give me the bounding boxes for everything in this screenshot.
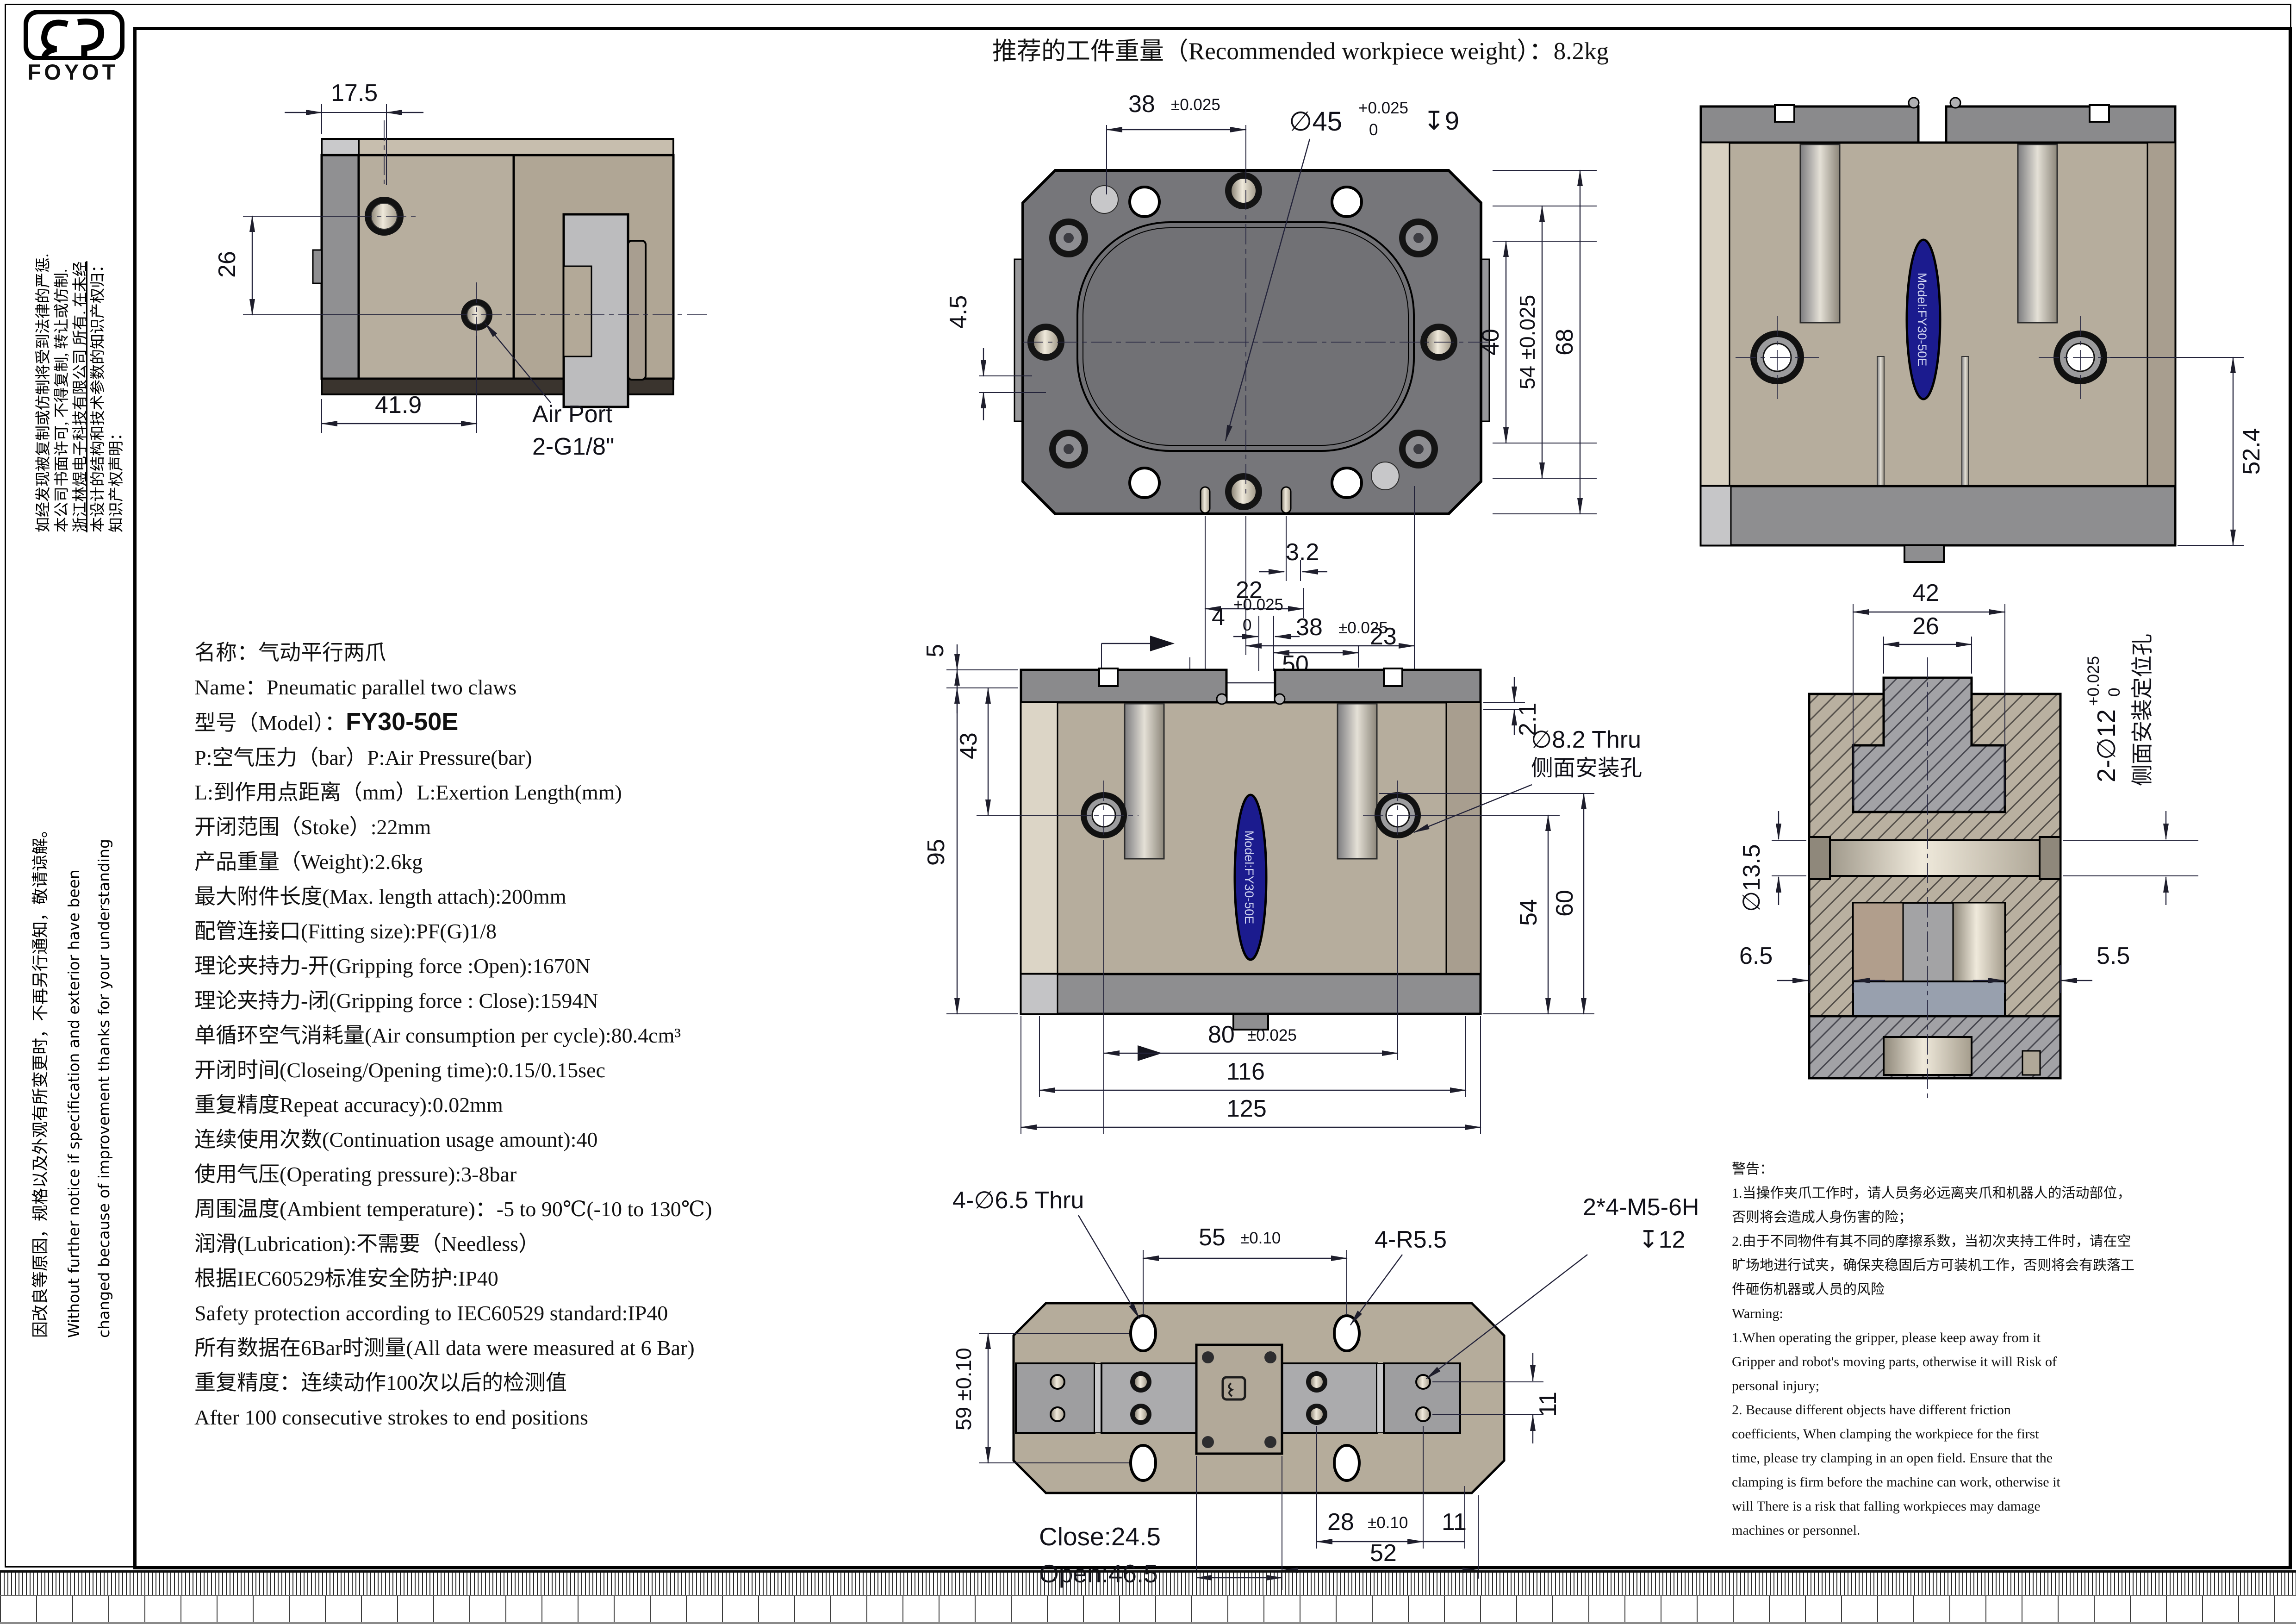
svg-text:↧9: ↧9 [1423, 106, 1459, 135]
svg-text:+0.025: +0.025 [1233, 596, 1283, 614]
spec-line: P:空气压力（bar）P:Air Pressure(bar) [194, 740, 990, 775]
svg-text:3.2: 3.2 [1286, 539, 1319, 566]
side-view-body [313, 139, 673, 407]
spec-line: 开闭时间(Closeing/Opening time):0.15/0.15sec [194, 1053, 990, 1087]
svg-text:5.5: 5.5 [2097, 943, 2130, 969]
spec-line: 周围温度(Ambient temperature)：-5 to 90℃(-10 … [194, 1192, 990, 1226]
dimensions-right: 40 54 ±0.025 68 [1477, 170, 1597, 514]
model-value: FY30-50E [346, 708, 458, 736]
warning-line: time, please try clamping in an open fie… [1732, 1446, 2264, 1470]
svg-text:0: 0 [2105, 688, 2123, 697]
spec-line: 连续使用次数(Continuation usage amount):40 [194, 1122, 990, 1157]
svg-text:60: 60 [1551, 890, 1578, 917]
svg-text:26: 26 [214, 251, 241, 278]
ruler-fine-ticks [0, 1570, 2296, 1595]
svg-text:55: 55 [1199, 1224, 1226, 1251]
section-arrow [1101, 636, 1175, 668]
svg-text:+0.025: +0.025 [1358, 99, 1408, 117]
page-title: 推荐的工件重量（Recommended workpiece weight）：8.… [907, 31, 1694, 67]
spec-line: 所有数据在6Bar时测量(All data were measured at 6… [194, 1330, 990, 1365]
side-view: 17.5 26 41.9 Air Port 2-G1/8" [199, 79, 782, 486]
bottom-view-body [1014, 1303, 1504, 1493]
spec-line: After 100 consecutive strokes to end pos… [194, 1400, 990, 1435]
svg-text:±0.10: ±0.10 [1240, 1229, 1281, 1247]
svg-text:54 ±0.025: 54 ±0.025 [1515, 295, 1539, 389]
change-notice-line: Without further notice if specification … [65, 869, 83, 1338]
svg-text:±0.025: ±0.025 [1247, 1026, 1297, 1044]
warning-line: 件砸伤机器或人员的风险 [1732, 1278, 2264, 1302]
spec-line: 润滑(Lubrication):不需要（Needless） [194, 1226, 990, 1261]
warning-line: 旷场地进行试夹，确保夹稳固后方可装机工作，否则将会有跌落工 [1732, 1254, 2264, 1278]
bottom-view: 4-∅6.5 Thru 55 ±0.10 4-R5.5 2*4-M5-6H ↧1… [940, 1171, 1782, 1597]
svg-text:±0.025: ±0.025 [1171, 96, 1220, 114]
brand-wordmark: FOYOT [18, 59, 129, 85]
spec-line: 单循环空气消耗量(Air consumption per cycle):80.4… [194, 1018, 990, 1053]
spec-line: 根据IEC60529标准安全防护:IP40 [194, 1261, 990, 1296]
spec-line: 开闭范围（Stoke）:22mm [194, 810, 990, 844]
svg-text:28: 28 [1327, 1509, 1354, 1536]
warning-line: coefficients, When clamping the workpiec… [1732, 1422, 2264, 1446]
spec-line: 产品重量（Weight):2.6kg [194, 844, 990, 879]
front-view: Model:FY30-50E 52.4 [1661, 79, 2291, 569]
svg-text:+0.025: +0.025 [2084, 656, 2103, 706]
svg-text:23: 23 [1370, 623, 1397, 650]
svg-text:125: 125 [1226, 1095, 1267, 1122]
svg-text:6.5: 6.5 [1739, 943, 1773, 969]
svg-text:54: 54 [1515, 899, 1542, 926]
change-notice-line: 因改良等原因，规格以及外观有所变更时，不再另行通知，敬请谅解。 [27, 821, 51, 1338]
svg-text:侧面安装孔: 侧面安装孔 [1531, 756, 1642, 781]
section-view: 42 26 2-∅12 +0.025 0 侧面安装定位孔 ∅13.5 [1731, 569, 2286, 1111]
svg-text:2-G1/8": 2-G1/8" [532, 433, 614, 460]
warning-line: will There is a risk that falling workpi… [1732, 1494, 2264, 1518]
spec-line: 配管连接口(Fitting size):PF(G)1/8 [194, 914, 990, 949]
svg-text:↧12: ↧12 [1638, 1226, 1685, 1253]
svg-text:42: 42 [1912, 580, 1939, 606]
section-body [1809, 657, 2060, 1102]
svg-text:Model:FY30-50E: Model:FY30-50E [1915, 273, 1929, 367]
svg-text:∅8.2 Thru: ∅8.2 Thru [1531, 726, 1641, 753]
svg-text:4.5: 4.5 [945, 295, 972, 329]
svg-text:41.9: 41.9 [375, 392, 422, 418]
warning-line: 警告： [1732, 1157, 2264, 1181]
spec-line: Name：Pneumatic parallel two claws [194, 670, 990, 705]
warning-line: 1.当操作夹爪工作时，请人员务必远离夹爪和机器人的活动部位， [1732, 1181, 2264, 1206]
spec-line: 重复精度Repeat accuracy):0.02mm [194, 1087, 990, 1122]
svg-text:2*4-M5-6H: 2*4-M5-6H [1583, 1194, 1699, 1221]
spec-line: 使用气压(Operating pressure):3-8bar [194, 1157, 990, 1192]
warning-block: 警告： 1.当操作夹爪工作时，请人员务必远离夹爪和机器人的活动部位， 否则将会造… [1732, 1157, 2264, 1543]
svg-text:4: 4 [1212, 604, 1225, 631]
svg-text:40: 40 [1477, 329, 1504, 356]
spec-list: 名称：气动平行两爪 Name：Pneumatic parallel two cl… [194, 635, 990, 1435]
model-label: 型号（Model）： [194, 711, 346, 735]
svg-text:Model:FY30-50E: Model:FY30-50E [1242, 831, 1256, 924]
spec-line: 理论夹持力-开(Gripping force :Open):1670N [194, 949, 990, 983]
ruler-coarse-ticks [0, 1595, 2296, 1622]
svg-text:68: 68 [1551, 329, 1578, 356]
svg-text:∅45: ∅45 [1289, 106, 1342, 137]
foyot-logo [23, 10, 125, 60]
svg-text:26: 26 [1912, 613, 1939, 640]
svg-text:80: 80 [1208, 1021, 1235, 1048]
warning-line: 2. Because different objects have differ… [1732, 1398, 2264, 1422]
ruler-edge [0, 1622, 2296, 1624]
svg-text:±0.10: ±0.10 [1368, 1514, 1408, 1532]
svg-text:Air Port: Air Port [532, 401, 613, 428]
spec-line: 理论夹持力-闭(Gripping force : Close):1594N [194, 983, 990, 1018]
datasheet-page: FOYOT 知识产权声明： 本设计的结构和技术参数的知识产权归： 浙江林煜电子科… [0, 0, 2296, 1624]
svg-text:0: 0 [1243, 616, 1251, 634]
svg-text:17.5: 17.5 [331, 80, 378, 106]
spec-line: 最大附件长度(Max. length attach):200mm [194, 879, 990, 914]
warning-line: Warning: [1732, 1302, 2264, 1326]
svg-text:Close:24.5: Close:24.5 [1039, 1522, 1161, 1551]
change-notice-line: changed because of improvement thanks fo… [95, 839, 113, 1338]
spec-line: 重复精度：连续动作100次以后的检测值 [194, 1365, 990, 1400]
warning-line: clamping is firm before the machine can … [1732, 1470, 2264, 1494]
svg-text:2-∅12: 2-∅12 [2092, 709, 2121, 782]
svg-text:∅13.5: ∅13.5 [1738, 844, 1765, 912]
svg-text:11: 11 [1535, 1392, 1562, 1417]
spec-line: 名称：气动平行两爪 [194, 635, 990, 670]
warning-line: 1.When operating the gripper, please kee… [1732, 1326, 2264, 1350]
svg-text:0: 0 [1369, 121, 1378, 139]
dimension-13-5: ∅13.5 [1738, 811, 1806, 912]
svg-text:52.4: 52.4 [2238, 428, 2265, 475]
warning-line: personal injury; [1732, 1374, 2264, 1398]
svg-text:52: 52 [1370, 1540, 1397, 1567]
spec-line-model: 型号（Model）：FY30-50E [194, 705, 990, 740]
scale-ruler [0, 1570, 2296, 1624]
spec-line: L:到作用点距离（mm）L:Exertion Length(mm) [194, 775, 990, 810]
dimension-55: 55 ±0.10 [1143, 1224, 1347, 1315]
warning-line: 2.由于不同物件有其不同的摩擦系数，当初次夹持工件时，请在空 [1732, 1230, 2264, 1254]
svg-text:侧面安装定位孔: 侧面安装定位孔 [2130, 634, 2154, 786]
model-plate: Model:FY30-50E [1235, 795, 1266, 960]
warning-line: 否则将会造成人身伤害的险； [1732, 1206, 2264, 1230]
warning-line: Gripper and robot's moving parts, otherw… [1732, 1350, 2264, 1374]
spec-line: Safety protection according to IEC60529 … [194, 1296, 990, 1330]
warning-line: machines or personnel. [1732, 1518, 2264, 1543]
svg-text:4-R5.5: 4-R5.5 [1375, 1226, 1447, 1253]
model-plate: Model:FY30-50E [1907, 240, 1940, 399]
svg-text:116: 116 [1226, 1058, 1265, 1085]
ip-notice-line: 如经发现被复制或仿制将受到法律的严惩. [31, 254, 53, 532]
pin-callout: 2-∅12 +0.025 0 侧面安装定位孔 [2063, 634, 2198, 905]
svg-text:38: 38 [1128, 91, 1155, 118]
svg-text:11: 11 [1442, 1509, 1467, 1536]
